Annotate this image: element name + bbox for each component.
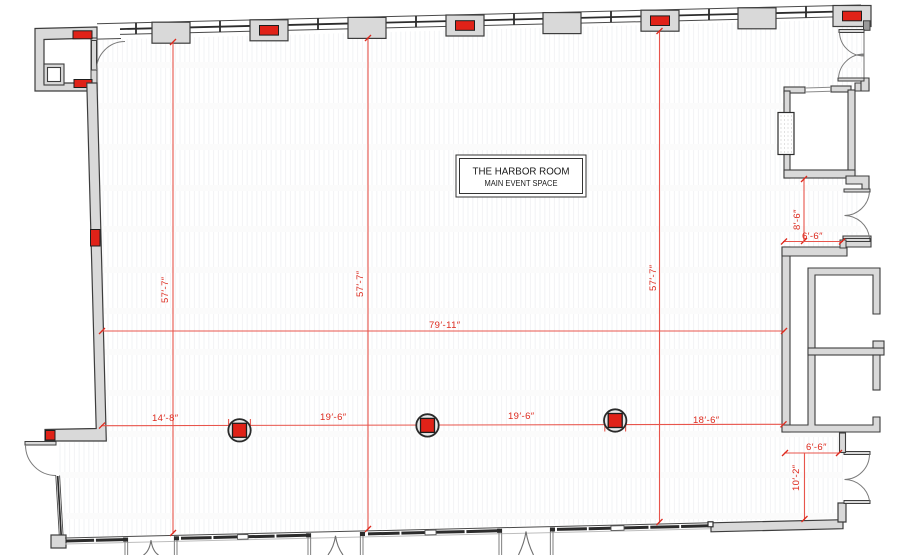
svg-text:79′-11″: 79′-11″ <box>429 320 461 331</box>
svg-text:57′-7″: 57′-7″ <box>648 264 659 291</box>
svg-text:MAIN EVENT SPACE: MAIN EVENT SPACE <box>485 179 558 188</box>
svg-text:6′-6″: 6′-6″ <box>802 231 823 242</box>
svg-text:THE HARBOR ROOM: THE HARBOR ROOM <box>473 166 570 178</box>
svg-text:18′-6″: 18′-6″ <box>693 415 720 426</box>
svg-text:6′-6″: 6′-6″ <box>806 442 827 453</box>
svg-text:14′-8″: 14′-8″ <box>152 413 179 424</box>
svg-text:8′-6″: 8′-6″ <box>792 209 803 230</box>
svg-text:10′-2″: 10′-2″ <box>791 464 802 491</box>
svg-text:19′-6″: 19′-6″ <box>508 411 535 422</box>
svg-text:19′-6″: 19′-6″ <box>320 412 347 423</box>
svg-text:57′-7″: 57′-7″ <box>160 276 171 303</box>
svg-text:57′-7″: 57′-7″ <box>355 270 366 297</box>
